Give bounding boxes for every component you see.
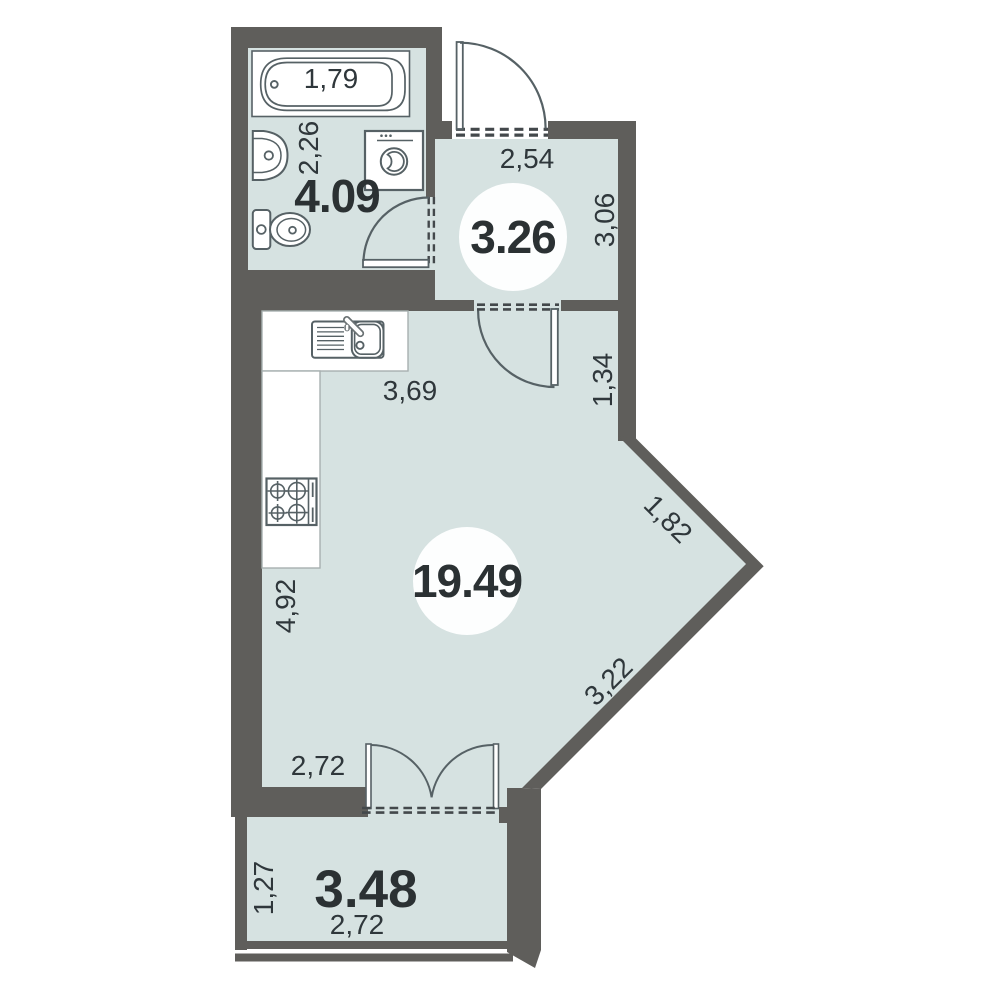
svg-text:3.26: 3.26 (470, 211, 556, 263)
svg-text:2,72: 2,72 (330, 909, 385, 940)
svg-text:2,26: 2,26 (293, 121, 324, 176)
svg-text:1,27: 1,27 (248, 861, 279, 916)
svg-text:4,92: 4,92 (270, 579, 301, 634)
svg-text:4.09: 4.09 (294, 170, 380, 222)
svg-text:2,72: 2,72 (291, 750, 346, 781)
svg-text:19.49: 19.49 (412, 555, 522, 607)
svg-text:3,69: 3,69 (383, 375, 438, 406)
svg-text:1,34: 1,34 (587, 353, 618, 408)
svg-text:1,79: 1,79 (304, 63, 359, 94)
svg-text:2,54: 2,54 (500, 143, 555, 174)
svg-text:3,06: 3,06 (589, 193, 620, 248)
